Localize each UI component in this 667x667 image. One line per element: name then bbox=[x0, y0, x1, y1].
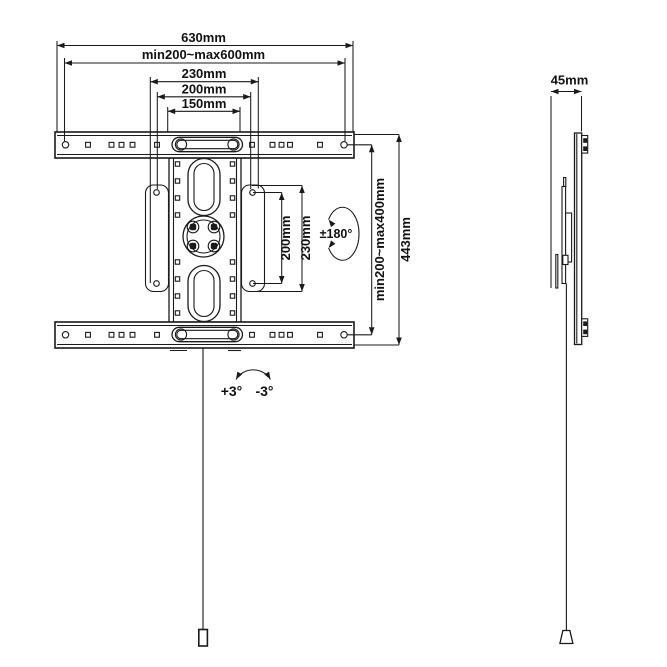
dim-height-range: min200~max400mm bbox=[347, 145, 387, 335]
dim-label-200mm-h: 200mm bbox=[182, 82, 227, 97]
tilt-arrow-left bbox=[234, 372, 243, 381]
tilt-down-label: -3° bbox=[255, 383, 273, 399]
front-pull-cord bbox=[199, 349, 208, 647]
wall-mount-dimension-drawing: +3° -3° ±180° 630mm min200~max600mm bbox=[0, 0, 667, 667]
top-rail-handle-slot bbox=[172, 137, 243, 151]
tilt-arrow-right bbox=[264, 372, 273, 381]
swivel-label: ±180° bbox=[320, 227, 353, 241]
dim-label-min-max400: min200~max400mm bbox=[372, 178, 387, 301]
side-pull-cord bbox=[560, 284, 573, 644]
side-view: 45mm bbox=[551, 73, 589, 644]
tilt-indicator: +3° -3° bbox=[221, 370, 274, 399]
dim-label-230mm-h: 230mm bbox=[182, 66, 227, 81]
side-wall-rail bbox=[575, 133, 582, 345]
dim-label-630mm: 630mm bbox=[181, 30, 226, 45]
top-wall-rail bbox=[55, 132, 354, 158]
bottom-wall-rail bbox=[55, 322, 354, 348]
side-cord-tip bbox=[560, 631, 573, 644]
drawing-canvas: +3° -3° ±180° 630mm min200~max600mm bbox=[0, 0, 667, 667]
dim-label-150mm: 150mm bbox=[182, 96, 227, 111]
side-bottom-bracket bbox=[582, 319, 588, 337]
dim-label-200mm-v: 200mm bbox=[278, 216, 293, 261]
swivel-indicator: ±180° bbox=[320, 207, 359, 260]
dim-label-min-max600: min200~max600mm bbox=[142, 47, 265, 62]
bottom-rail-handle-slot bbox=[172, 327, 243, 341]
side-top-bracket bbox=[582, 136, 588, 154]
dim-width-150: 150mm bbox=[168, 96, 240, 132]
front-cord-tip bbox=[199, 630, 208, 647]
dim-label-45mm: 45mm bbox=[551, 73, 589, 88]
side-tv-plate bbox=[556, 178, 572, 289]
front-view: +3° -3° ±180° 630mm min200~max600mm bbox=[55, 30, 413, 646]
swivel-arrow-top bbox=[326, 218, 335, 227]
swivel-arrow-bottom bbox=[326, 240, 335, 249]
dim-label-443mm: 443mm bbox=[398, 217, 413, 262]
tilt-up-label: +3° bbox=[221, 383, 243, 399]
dim-label-230mm-v: 230mm bbox=[298, 216, 313, 261]
